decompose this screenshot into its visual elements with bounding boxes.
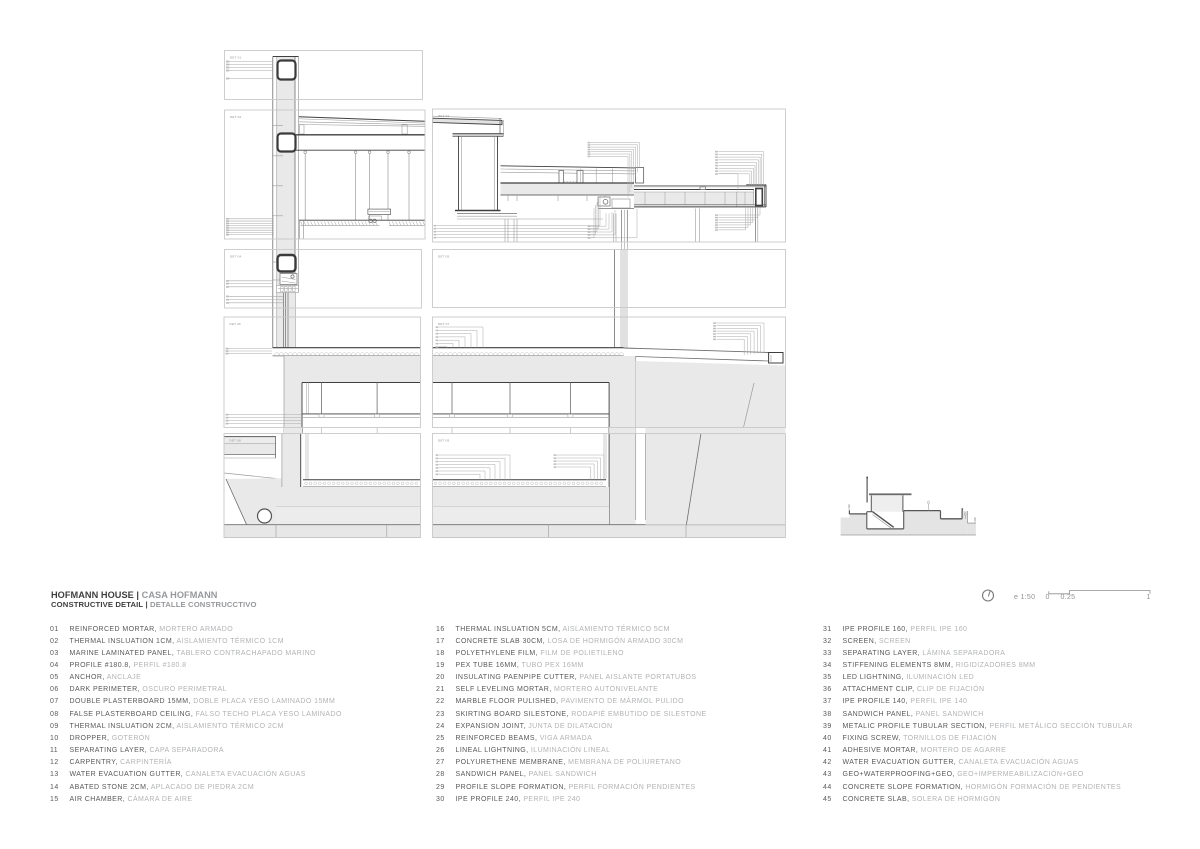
svg-text:DET 07: DET 07 <box>438 322 449 326</box>
svg-text:DET 01: DET 01 <box>230 55 241 59</box>
svg-text:DET 05: DET 05 <box>438 254 449 258</box>
svg-text:DET 03: DET 03 <box>438 114 449 118</box>
svg-text:DET 04: DET 04 <box>230 254 241 258</box>
svg-text:DET 06: DET 06 <box>230 322 241 326</box>
svg-text:DET 09: DET 09 <box>438 438 449 442</box>
svg-text:DET 08: DET 08 <box>230 438 241 442</box>
svg-text:DET 02: DET 02 <box>230 115 241 119</box>
